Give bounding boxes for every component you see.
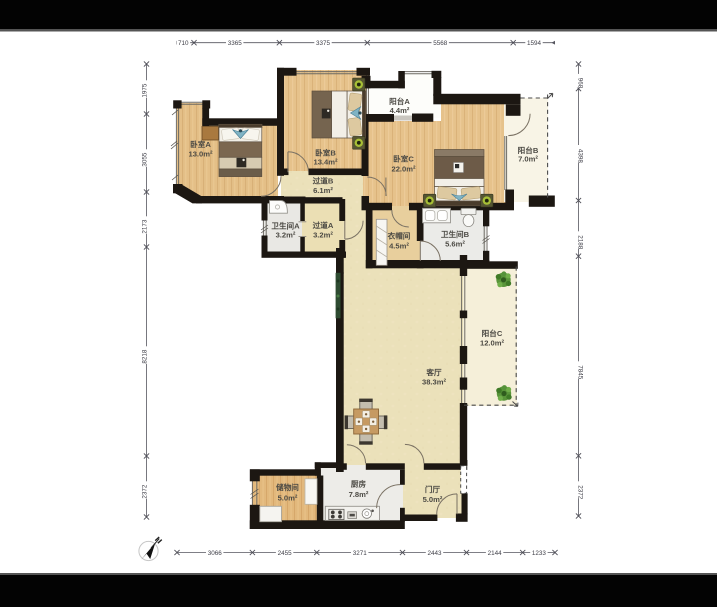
svg-text:过道A: 过道A (313, 220, 334, 230)
svg-text:7.8m²: 7.8m² (349, 490, 369, 499)
svg-text:5.0m²: 5.0m² (278, 493, 298, 502)
svg-text:3.2m²: 3.2m² (276, 230, 296, 239)
svg-text:13.0m²: 13.0m² (188, 149, 213, 158)
svg-text:2372: 2372 (142, 484, 149, 499)
svg-text:968: 968 (577, 78, 584, 89)
svg-text:3.2m²: 3.2m² (313, 230, 333, 239)
svg-text:5.6m²: 5.6m² (445, 240, 465, 249)
svg-text:4.4m²: 4.4m² (390, 106, 410, 115)
svg-text:2144: 2144 (488, 550, 503, 557)
svg-text:卧室C: 卧室C (393, 153, 414, 163)
svg-text:阳台C: 阳台C (482, 328, 503, 338)
svg-text:5.0m²: 5.0m² (423, 495, 443, 504)
svg-text:3055: 3055 (142, 152, 149, 167)
svg-text:38.3m²: 38.3m² (422, 377, 447, 386)
svg-text:22.0m²: 22.0m² (391, 165, 416, 174)
svg-text:3375: 3375 (316, 40, 331, 47)
svg-text:衣帽间: 衣帽间 (388, 230, 411, 240)
svg-text:2173: 2173 (142, 219, 149, 234)
svg-text:2372: 2372 (577, 485, 584, 500)
svg-text:1594: 1594 (527, 40, 542, 47)
svg-text:卫生间B: 卫生间B (441, 229, 470, 239)
svg-text:阳台B: 阳台B (518, 145, 539, 155)
svg-text:3066: 3066 (208, 550, 223, 557)
svg-text:12.0m²: 12.0m² (480, 339, 505, 348)
svg-text:4398: 4398 (577, 149, 584, 164)
svg-text:卫生间A: 卫生间A (271, 221, 300, 231)
svg-text:8218: 8218 (142, 349, 149, 364)
svg-text:3271: 3271 (353, 550, 368, 557)
svg-text:客厅: 客厅 (426, 367, 442, 377)
svg-text:过道B: 过道B (313, 176, 334, 186)
svg-text:卧室B: 卧室B (315, 147, 336, 157)
svg-text:4.5m²: 4.5m² (389, 242, 409, 251)
svg-text:厨房: 厨房 (351, 479, 367, 489)
svg-text:3365: 3365 (228, 40, 243, 47)
svg-text:2455: 2455 (278, 550, 293, 557)
svg-text:710: 710 (178, 40, 189, 47)
svg-text:门厅: 门厅 (425, 484, 441, 494)
svg-text:1233: 1233 (532, 550, 547, 557)
svg-text:6.1m²: 6.1m² (313, 186, 333, 195)
svg-text:1975: 1975 (142, 83, 149, 98)
svg-text:阳台A: 阳台A (389, 96, 410, 106)
svg-text:2188: 2188 (577, 235, 584, 250)
svg-text:7845: 7845 (577, 365, 584, 380)
svg-text:13.4m²: 13.4m² (313, 158, 338, 167)
svg-text:2443: 2443 (427, 550, 442, 557)
svg-text:储物间: 储物间 (276, 482, 299, 492)
svg-text:5568: 5568 (433, 40, 448, 47)
svg-text:卧室A: 卧室A (190, 139, 211, 149)
svg-text:7.0m²: 7.0m² (518, 155, 538, 164)
